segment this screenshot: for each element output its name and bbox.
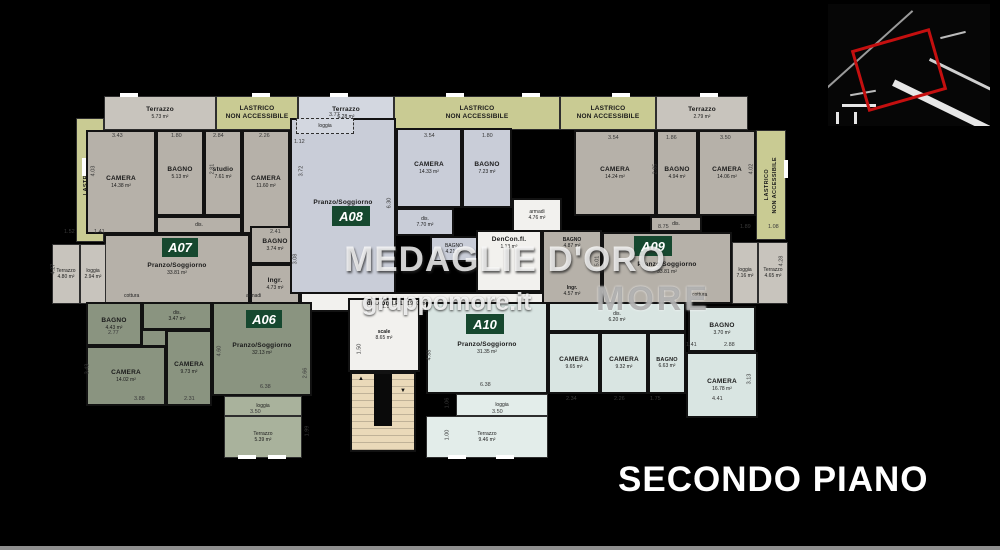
- room-a07-camera1: CAMERA 14.38 m²: [86, 130, 156, 234]
- dimension-label: 1.80: [171, 133, 182, 139]
- dimension-label: 6.38: [260, 384, 271, 390]
- window-marker: [784, 160, 788, 178]
- room-name: BAGNO: [262, 238, 287, 246]
- room-name: CAMERA: [174, 361, 204, 369]
- room-area: 4.76 m²: [529, 215, 546, 221]
- apartment-badge-a09: A09: [634, 236, 672, 256]
- cottura-label: cottura: [124, 293, 139, 299]
- dimension-label: 2.26: [614, 396, 625, 402]
- room-name: Pranzo/Soggiorno: [637, 261, 696, 269]
- dimension-label: 3.50: [250, 409, 261, 415]
- dimension-label: 1.12: [294, 139, 305, 145]
- lastrico-label: NON ACCESSIBILE: [772, 157, 779, 214]
- room-area: 7.16 m²: [737, 273, 754, 279]
- room-a06-bagno: BAGNO 4.43 m²: [86, 302, 142, 346]
- lastrico-label: LASTRICO: [764, 169, 771, 200]
- window-marker: [330, 93, 348, 97]
- lastrico-label: LASTRICO: [591, 105, 626, 113]
- room-area: 9.65 m²: [566, 364, 583, 370]
- apartment-badge-a06: A06: [246, 310, 282, 328]
- room-area: 5.73 m²: [152, 114, 169, 120]
- room-name: Pranzo/Soggiorno: [457, 341, 516, 349]
- room-area: 2.94 m²: [85, 274, 102, 280]
- dimension-label: 1.99: [304, 426, 310, 437]
- room-area: 4.80 m²: [58, 274, 75, 280]
- window-marker: [446, 93, 464, 97]
- stair-up-arrow: ▲: [358, 376, 364, 382]
- dimension-label: 2.88: [724, 342, 735, 348]
- room-area: 33.81 m²: [167, 270, 187, 276]
- dimension-label: 3.72: [298, 166, 304, 177]
- room-name: Pranzo/Soggiorno: [147, 262, 206, 270]
- dimension-label: 1.00: [444, 430, 450, 441]
- window-marker: [448, 455, 466, 459]
- room-name: CAMERA: [559, 356, 589, 364]
- dimension-label: 6.30: [386, 198, 392, 209]
- floor-title: SECONDO PIANO: [618, 460, 929, 500]
- dimension-label: 3.13: [746, 374, 752, 385]
- window-marker: [522, 93, 540, 97]
- lastrico-strip-3: LASTRICO NON ACCESSIBILE: [560, 96, 656, 130]
- room-name: Terrazzo: [146, 106, 174, 114]
- apartment-badge-a07: A07: [162, 238, 198, 257]
- dimension-label: 3.54: [608, 135, 619, 141]
- dimension-label: 1.41: [94, 229, 105, 235]
- room-a06-terrazzo: Terrazzo 5.39 m²: [224, 416, 302, 458]
- room-area: 9.73 m²: [181, 369, 198, 375]
- room-area: 14.38 m²: [111, 183, 131, 189]
- room-area: 3.70 m²: [714, 330, 731, 336]
- site-plan-inset: [828, 4, 990, 126]
- room-name: BAGNO: [709, 322, 734, 330]
- dimension-label: 1.75: [650, 396, 661, 402]
- room-name: BAGNO: [167, 166, 192, 174]
- lastrico-label: NON ACCESSIBILE: [446, 113, 509, 121]
- room-a08-bagno2: BAGNO 4.21 m²: [430, 236, 478, 262]
- room-a06-filler: [142, 330, 166, 346]
- room-a09-bagno1: BAGNO 4.94 m²: [656, 130, 698, 216]
- room-area: 9.46 m²: [479, 437, 496, 443]
- room-a07-terrazzo-top: Terrazzo 5.73 m²: [104, 96, 216, 130]
- dimension-label: 4.60: [216, 346, 222, 357]
- room-name: CAMERA: [609, 356, 639, 364]
- lastrico-label: LASTRICO: [460, 105, 495, 113]
- room-a06-dis: dis. 3.47 m²: [142, 302, 212, 330]
- room-a07-camera2: CAMERA 11.60 m²: [242, 130, 290, 234]
- window-marker: [268, 455, 286, 459]
- room-name: dis.: [672, 221, 680, 227]
- dimension-label: 2.31: [184, 396, 195, 402]
- window-marker: [496, 455, 514, 459]
- dimension-label: 2.81: [209, 164, 215, 175]
- room-area: 32.13 m²: [252, 350, 272, 356]
- window-marker: [238, 455, 256, 459]
- room-area: 5.39 m²: [255, 437, 272, 443]
- room-name: Ingr.: [268, 277, 283, 285]
- room-name: CAMERA: [251, 175, 281, 183]
- window-marker: [120, 93, 138, 97]
- cottura-label: cottura: [692, 292, 707, 298]
- room-a08-dis: dis. 7.70 m²: [396, 208, 454, 236]
- floorplan-canvas: Terrazzo 5.73 m² LASTRICO NON ACCESSIBIL…: [0, 0, 1000, 550]
- room-name: Pranzo/Soggiorno: [232, 342, 291, 350]
- room-name: studio: [213, 166, 234, 174]
- dimension-label: 2.84: [213, 133, 224, 139]
- room-area: 2.79 m²: [694, 114, 711, 120]
- room-a06-camera2: CAMERA 9.73 m²: [166, 330, 212, 406]
- room-area: 6.20 m²: [609, 317, 626, 323]
- room-a06-camera1: CAMERA 14.02 m²: [86, 346, 166, 406]
- room-area: 14.33 m²: [419, 169, 439, 175]
- room-area: 7.70 m²: [417, 222, 434, 228]
- dimension-label: 5.01: [594, 256, 600, 267]
- lastrico-label: LASTRICO: [240, 105, 275, 113]
- bottom-bar: [0, 546, 1000, 550]
- room-a06-loggia: loggia: [224, 396, 302, 416]
- room-name: Terrazzo: [688, 106, 716, 114]
- window-marker: [82, 158, 86, 176]
- room-area: 4.73 m²: [267, 285, 284, 291]
- stair-down-arrow: ▼: [400, 388, 406, 394]
- dimension-label: 2.85: [652, 164, 658, 175]
- dimension-label: 2.41: [270, 229, 281, 235]
- stair-void: [374, 374, 392, 426]
- dimension-label: 2.66: [302, 368, 308, 379]
- dimension-label: 3.88: [134, 396, 145, 402]
- room-common-armadi: armadi 4.76 m²: [512, 198, 562, 232]
- room-name: BAGNO: [664, 166, 689, 174]
- lastrico-strip-1: LASTRICO NON ACCESSIBILE: [216, 96, 298, 130]
- dimension-label: 1.06: [444, 398, 450, 409]
- room-area: 4.65 m²: [765, 273, 782, 279]
- room-name: BAGNO: [474, 161, 499, 169]
- room-a07-bagno1: BAGNO 5.13 m²: [156, 130, 204, 216]
- lastrico-label: NON ACCESSIBILE: [226, 113, 289, 121]
- dimension-label: 8.75: [658, 224, 669, 230]
- lastrico-strip-2: LASTRICO NON ACCESSIBILE: [394, 96, 560, 130]
- room-area: 4.94 m²: [669, 174, 686, 180]
- room-name: BAGNO: [101, 317, 126, 325]
- room-a10-dis: dis. 6.20 m²: [548, 302, 686, 332]
- room-a08-loggia: loggia: [296, 118, 354, 134]
- room-area: 7.23 m²: [479, 169, 496, 175]
- dimension-label: 2.26: [259, 133, 270, 139]
- room-a09-camera2: CAMERA 14.06 m²: [698, 130, 756, 216]
- dimension-label: 1.89: [740, 224, 751, 230]
- dimension-label: 2.77: [108, 330, 119, 336]
- room-area: 7.61 m²: [215, 174, 232, 180]
- window-marker: [700, 93, 718, 97]
- armadi-label: armadi: [246, 293, 261, 299]
- dimension-label: 3.54: [424, 133, 435, 139]
- room-area: 19.93 m²: [407, 301, 427, 307]
- room-a10-bagno1: BAGNO 6.63 m²: [648, 332, 686, 394]
- room-name: CAMERA: [111, 369, 141, 377]
- room-a09-terrazzo-top: Terrazzo 2.79 m²: [656, 96, 748, 130]
- room-a10-camera3: CAMERA 16.78 m²: [686, 352, 758, 418]
- room-a07-dis: dis.: [156, 216, 242, 234]
- dimension-label: 2.34: [566, 396, 577, 402]
- dimension-label: 4.03: [90, 166, 96, 177]
- room-name: CAMERA: [106, 175, 136, 183]
- room-area: 6.63 m²: [659, 363, 676, 369]
- room-name: BAGNO: [656, 357, 677, 364]
- room-a10-camera1: CAMERA 9.65 m²: [548, 332, 600, 394]
- room-a10-bagno2: BAGNO 3.70 m²: [688, 306, 756, 352]
- dimension-label: 4.28: [778, 256, 784, 267]
- room-a09-ingresso: Ingr. 4.57 m²: [564, 285, 581, 297]
- dimension-label: 4.02: [748, 164, 754, 175]
- room-area: 8.65 m²: [376, 335, 393, 341]
- room-name: CAMERA: [712, 166, 742, 174]
- dimension-label: 1.86: [666, 135, 677, 141]
- dimension-label: 3.50: [720, 135, 731, 141]
- dimension-label: 1.41: [686, 342, 697, 348]
- room-name: dis.: [195, 222, 203, 228]
- inset-building-line: [940, 31, 966, 39]
- apartment-badge-a08: A08: [332, 206, 370, 226]
- dimension-label: 3.50: [492, 409, 503, 415]
- room-area: 14.06 m²: [717, 174, 737, 180]
- dimension-label: 3.43: [84, 364, 90, 375]
- room-area: 3.74 m²: [267, 246, 284, 252]
- dimension-label: 6.38: [480, 382, 491, 388]
- room-name: CAMERA: [600, 166, 630, 174]
- inset-building-line: [836, 112, 839, 124]
- dimension-label: 3.77: [329, 112, 340, 118]
- room-area: 1.13 m²: [501, 244, 518, 250]
- room-a10-camera2: CAMERA 9.32 m²: [600, 332, 648, 394]
- room-a07-loggia: loggia 2.94 m²: [80, 244, 106, 304]
- room-a08-camera: CAMERA 14.33 m²: [396, 128, 462, 208]
- room-area: 4.21 m²: [446, 249, 463, 255]
- room-common-den: DenCon.fl. 1.13 m²: [476, 230, 542, 292]
- room-area: 4.57 m²: [564, 291, 581, 297]
- room-name: DenCon.fl.: [492, 236, 527, 244]
- apartment-badge-a10: A10: [466, 314, 504, 334]
- landing-label: dis.cond.P1 19.93 m²: [352, 292, 442, 310]
- dimension-label: 3.43: [112, 133, 123, 139]
- dimension-label: 1.08: [768, 224, 779, 230]
- inset-building-line: [854, 112, 857, 124]
- dimension-label: 4.27: [50, 264, 56, 275]
- dimension-label: 3.08: [292, 254, 298, 265]
- window-marker: [252, 93, 270, 97]
- room-area: 9.32 m²: [616, 364, 633, 370]
- room-a09-entrance: BAGNO 4.87 m² Ingr. 4.57 m²: [542, 230, 602, 304]
- room-name: loggia: [495, 402, 508, 408]
- room-area: 4.87 m²: [563, 243, 582, 249]
- room-area: 31.35 m²: [477, 349, 497, 355]
- window-marker: [612, 93, 630, 97]
- room-area: 33.81 m²: [657, 269, 677, 275]
- lastrico-label: NON ACCESSIBILE: [577, 113, 640, 121]
- dimension-label: 1.80: [482, 133, 493, 139]
- room-area: 14.24 m²: [605, 174, 625, 180]
- dimension-label: 4.88: [426, 350, 432, 361]
- dimension-label: 4.41: [712, 396, 723, 402]
- room-a09-loggia: loggia 7.16 m²: [732, 242, 758, 304]
- room-area: 5.13 m²: [172, 174, 189, 180]
- room-a09-bagno2: BAGNO 4.87 m²: [563, 237, 582, 249]
- room-area: 11.60 m²: [256, 183, 275, 189]
- dimension-label: 1.50: [356, 344, 362, 355]
- dimension-label: 1.52: [64, 229, 75, 235]
- room-area: 3.47 m²: [169, 316, 186, 322]
- room-name: loggia: [318, 123, 331, 129]
- room-name: dis.cond.P1: [367, 301, 403, 307]
- room-area: 16.78 m²: [712, 386, 732, 392]
- room-a09-terrazzo: Terrazzo 4.65 m²: [758, 242, 788, 304]
- room-area: 14.02 m²: [116, 377, 136, 383]
- room-a09-camera1: CAMERA 14.24 m²: [574, 130, 656, 216]
- room-name: CAMERA: [414, 161, 444, 169]
- room-name: CAMERA: [707, 378, 737, 386]
- room-a08-bagno1: BAGNO 7.23 m²: [462, 128, 512, 208]
